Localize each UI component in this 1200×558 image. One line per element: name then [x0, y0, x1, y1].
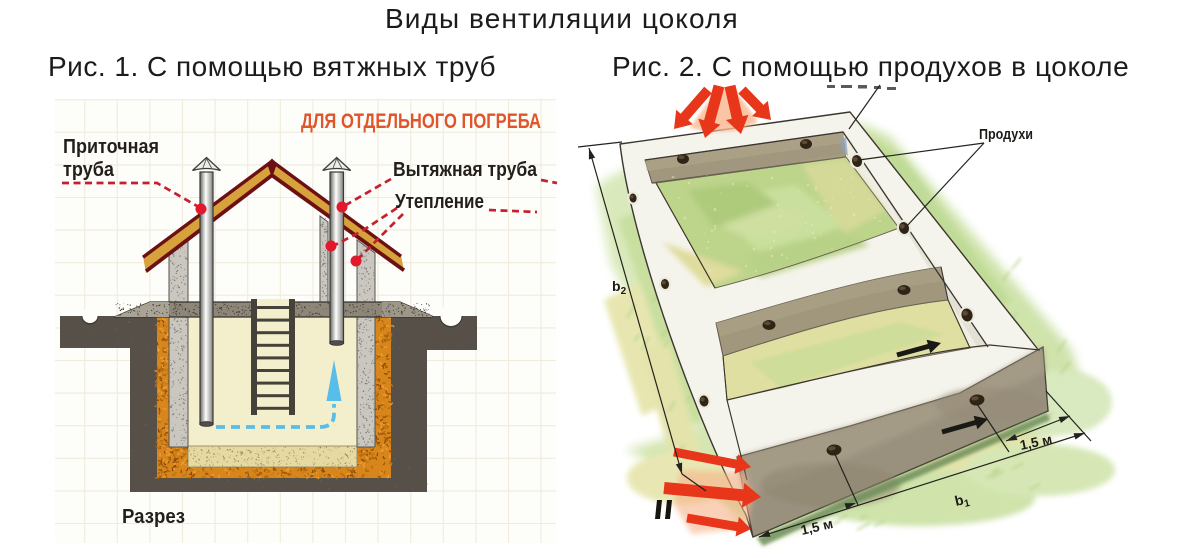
svg-text:Приточная: Приточная: [63, 135, 159, 158]
svg-text:Утепление: Утепление: [395, 190, 484, 213]
svg-text:ДЛЯ ОТДЕЛЬНОГО ПОГРЕБА: ДЛЯ ОТДЕЛЬНОГО ПОГРЕБА: [301, 110, 541, 133]
svg-text:Продухи: Продухи: [979, 127, 1033, 143]
svg-text:труба: труба: [63, 158, 115, 181]
svg-text:Вытяжная труба: Вытяжная труба: [393, 158, 538, 181]
svg-text:Разрез: Разрез: [122, 505, 185, 528]
